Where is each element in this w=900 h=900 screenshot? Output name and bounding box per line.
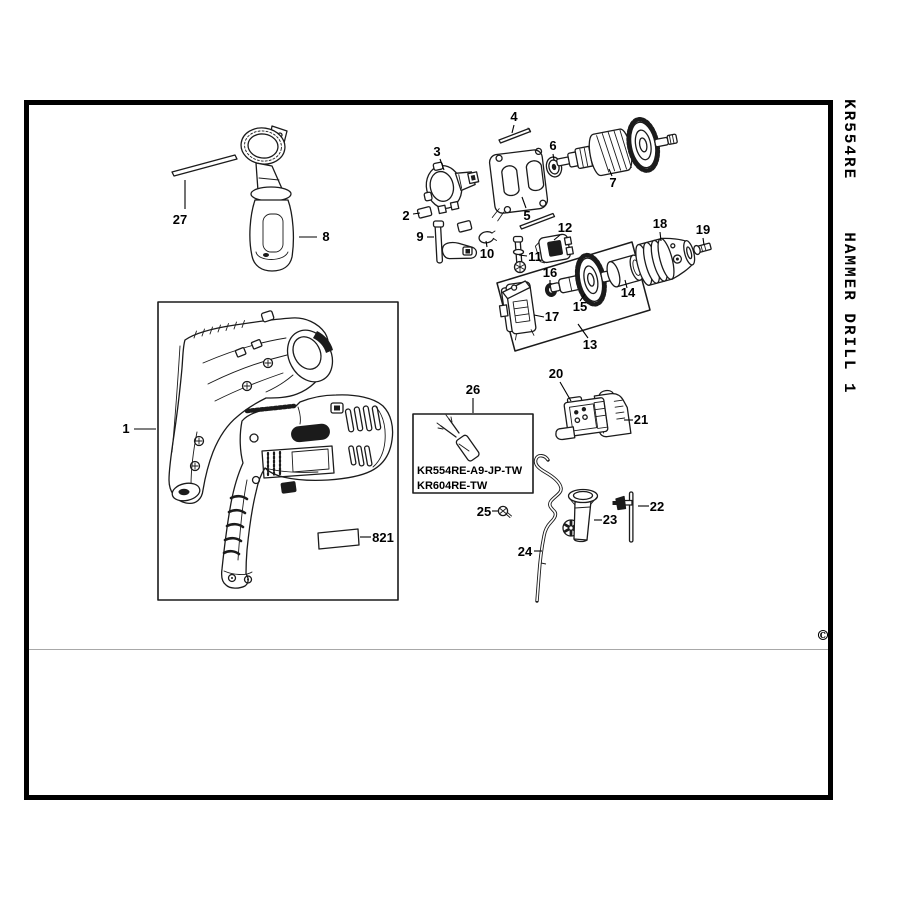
callout-15: 15 (573, 299, 587, 314)
callout-7: 7 (609, 175, 616, 190)
callout-8: 8 (322, 229, 329, 244)
callout-2: 2 (402, 208, 409, 223)
callout-16: 16 (543, 265, 557, 280)
callout-22: 22 (650, 499, 664, 514)
callout-19: 19 (696, 222, 710, 237)
parts-diagram-page: © KR554REHAMMER DRILL 1 (0, 0, 900, 900)
callout-27: 27 (173, 212, 187, 227)
armature-drawing (552, 113, 682, 187)
callout-18: 18 (653, 216, 667, 231)
callout-1: 1 (122, 421, 129, 436)
callout-10: 10 (480, 246, 494, 261)
key-holder-drawing (563, 490, 598, 542)
lower-housing-half-drawing (222, 395, 393, 588)
callout-26: 26 (466, 382, 480, 397)
callout-21: 21 (634, 412, 648, 427)
callout-4: 4 (510, 109, 518, 124)
callout-13: 13 (583, 337, 597, 352)
label-sticker-drawing (318, 529, 359, 549)
hammer-mechanism-drawing (497, 280, 538, 341)
side-handle-drawing (239, 125, 294, 271)
callout-821: 821 (372, 530, 394, 545)
callout-24: 24 (518, 544, 533, 559)
field-coil-drawing (485, 148, 550, 221)
callout-5: 5 (523, 208, 530, 223)
inset-model-line-2: KR604RE-TW (417, 480, 488, 492)
callout-23: 23 (603, 512, 617, 527)
callout-20: 20 (549, 366, 563, 381)
callout-17: 17 (545, 309, 559, 324)
wire-guard-drawing (535, 456, 561, 601)
depth-rod-drawing (172, 155, 237, 176)
chuck-screw-drawing (693, 242, 712, 255)
callout-3: 3 (433, 144, 440, 159)
callout-6: 6 (549, 138, 556, 153)
callout-14: 14 (621, 285, 636, 300)
inset-model-line-1: KR554RE-A9-JP-TW (417, 465, 523, 477)
selector-pin-drawing (514, 237, 526, 273)
chuck-drawing (633, 231, 699, 286)
cordset-drawing (437, 415, 480, 462)
callout-9: 9 (416, 229, 423, 244)
callout-25: 25 (477, 504, 491, 519)
field-screw-drawing (499, 128, 531, 143)
exploded-view-diagram: 1 2 3 4 5 6 7 8 9 10 11 12 13 14 15 16 1… (0, 0, 900, 900)
retaining-clip-drawing (479, 231, 496, 243)
callout-12: 12 (558, 220, 572, 235)
screw-drawing (498, 506, 511, 517)
callout-11: 11 (528, 249, 542, 264)
